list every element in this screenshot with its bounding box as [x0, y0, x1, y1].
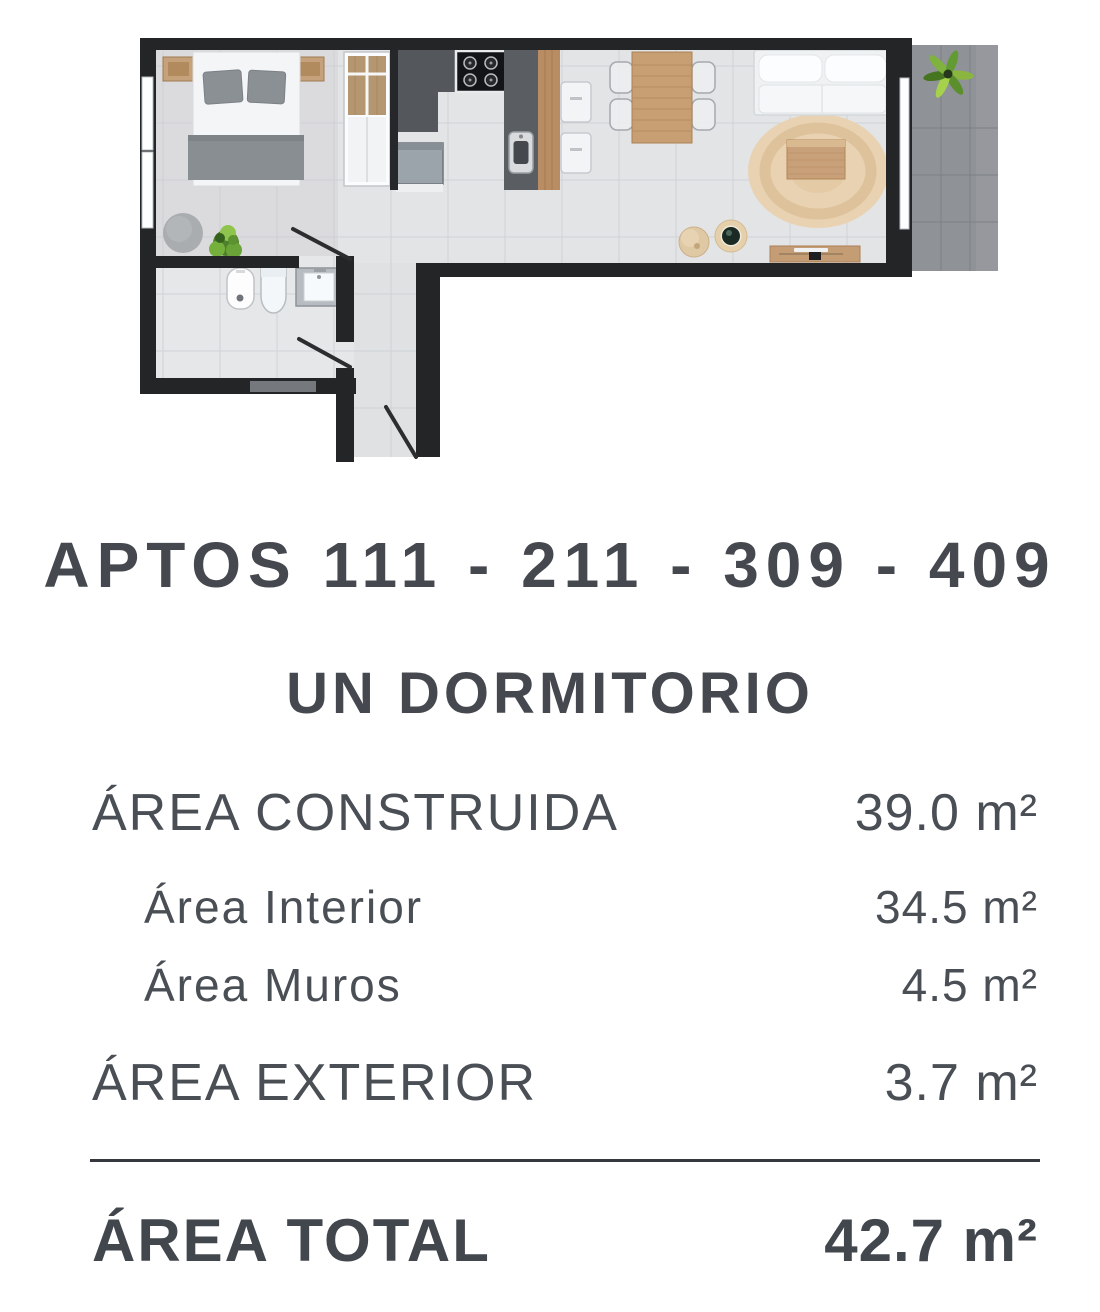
- sink-icon: [509, 132, 533, 173]
- stove-icon: [456, 51, 506, 92]
- toilet-icon: [261, 268, 286, 313]
- divider-line: [90, 1159, 1040, 1162]
- bidet-icon: [227, 268, 254, 309]
- area-row-muros: Área Muros 4.5 m²: [92, 958, 1038, 1012]
- area-row-exterior: ÁREA EXTERIOR 3.7 m²: [92, 1053, 1038, 1113]
- page-subtitle: UN DORMITORIO: [0, 660, 1100, 727]
- area-value: 3.7 m²: [885, 1053, 1038, 1113]
- terrace-glass-door: [900, 78, 909, 229]
- chair: [692, 62, 715, 93]
- washer-icon: [396, 143, 443, 192]
- vanity-sink-icon: [296, 268, 343, 306]
- dining-table: [632, 52, 692, 143]
- area-row-total: ÁREA TOTAL 42.7 m²: [92, 1206, 1038, 1275]
- wood-counter: [538, 50, 560, 190]
- floorplan-container: [0, 0, 1100, 500]
- chair: [692, 99, 715, 130]
- chair: [610, 99, 633, 130]
- pouf-with-bowl: [715, 220, 747, 252]
- bedroom-window: [142, 152, 153, 228]
- area-label: ÁREA EXTERIOR: [92, 1053, 537, 1113]
- area-label: Área Muros: [144, 958, 402, 1012]
- doormat: [250, 381, 316, 392]
- floorplan: [0, 0, 1100, 500]
- area-label: Área Interior: [144, 880, 423, 934]
- area-value: 4.5 m²: [902, 958, 1038, 1012]
- bedroom-window: [142, 77, 153, 150]
- nightstand: [163, 57, 194, 81]
- wardrobe: [344, 52, 390, 186]
- area-row-construida: ÁREA CONSTRUIDA 39.0 m²: [92, 783, 1038, 843]
- area-value: 42.7 m²: [824, 1206, 1038, 1275]
- sofa-icon: [754, 50, 891, 115]
- round-pouf: [163, 213, 203, 253]
- page-title: APTOS 111 - 211 - 309 - 409: [0, 528, 1100, 602]
- tv-console: [770, 246, 860, 262]
- bed-icon: [188, 52, 304, 186]
- chair: [610, 62, 633, 93]
- stool: [561, 133, 591, 173]
- floor-pouf: [679, 227, 709, 257]
- area-value: 39.0 m²: [855, 783, 1038, 843]
- area-label: ÁREA CONSTRUIDA: [92, 783, 619, 843]
- area-row-interior: Área Interior 34.5 m²: [92, 880, 1038, 934]
- stool: [561, 82, 591, 122]
- terrace: [912, 45, 998, 271]
- area-value: 34.5 m²: [875, 880, 1038, 934]
- coffee-table: [787, 140, 845, 179]
- area-label: ÁREA TOTAL: [92, 1206, 491, 1275]
